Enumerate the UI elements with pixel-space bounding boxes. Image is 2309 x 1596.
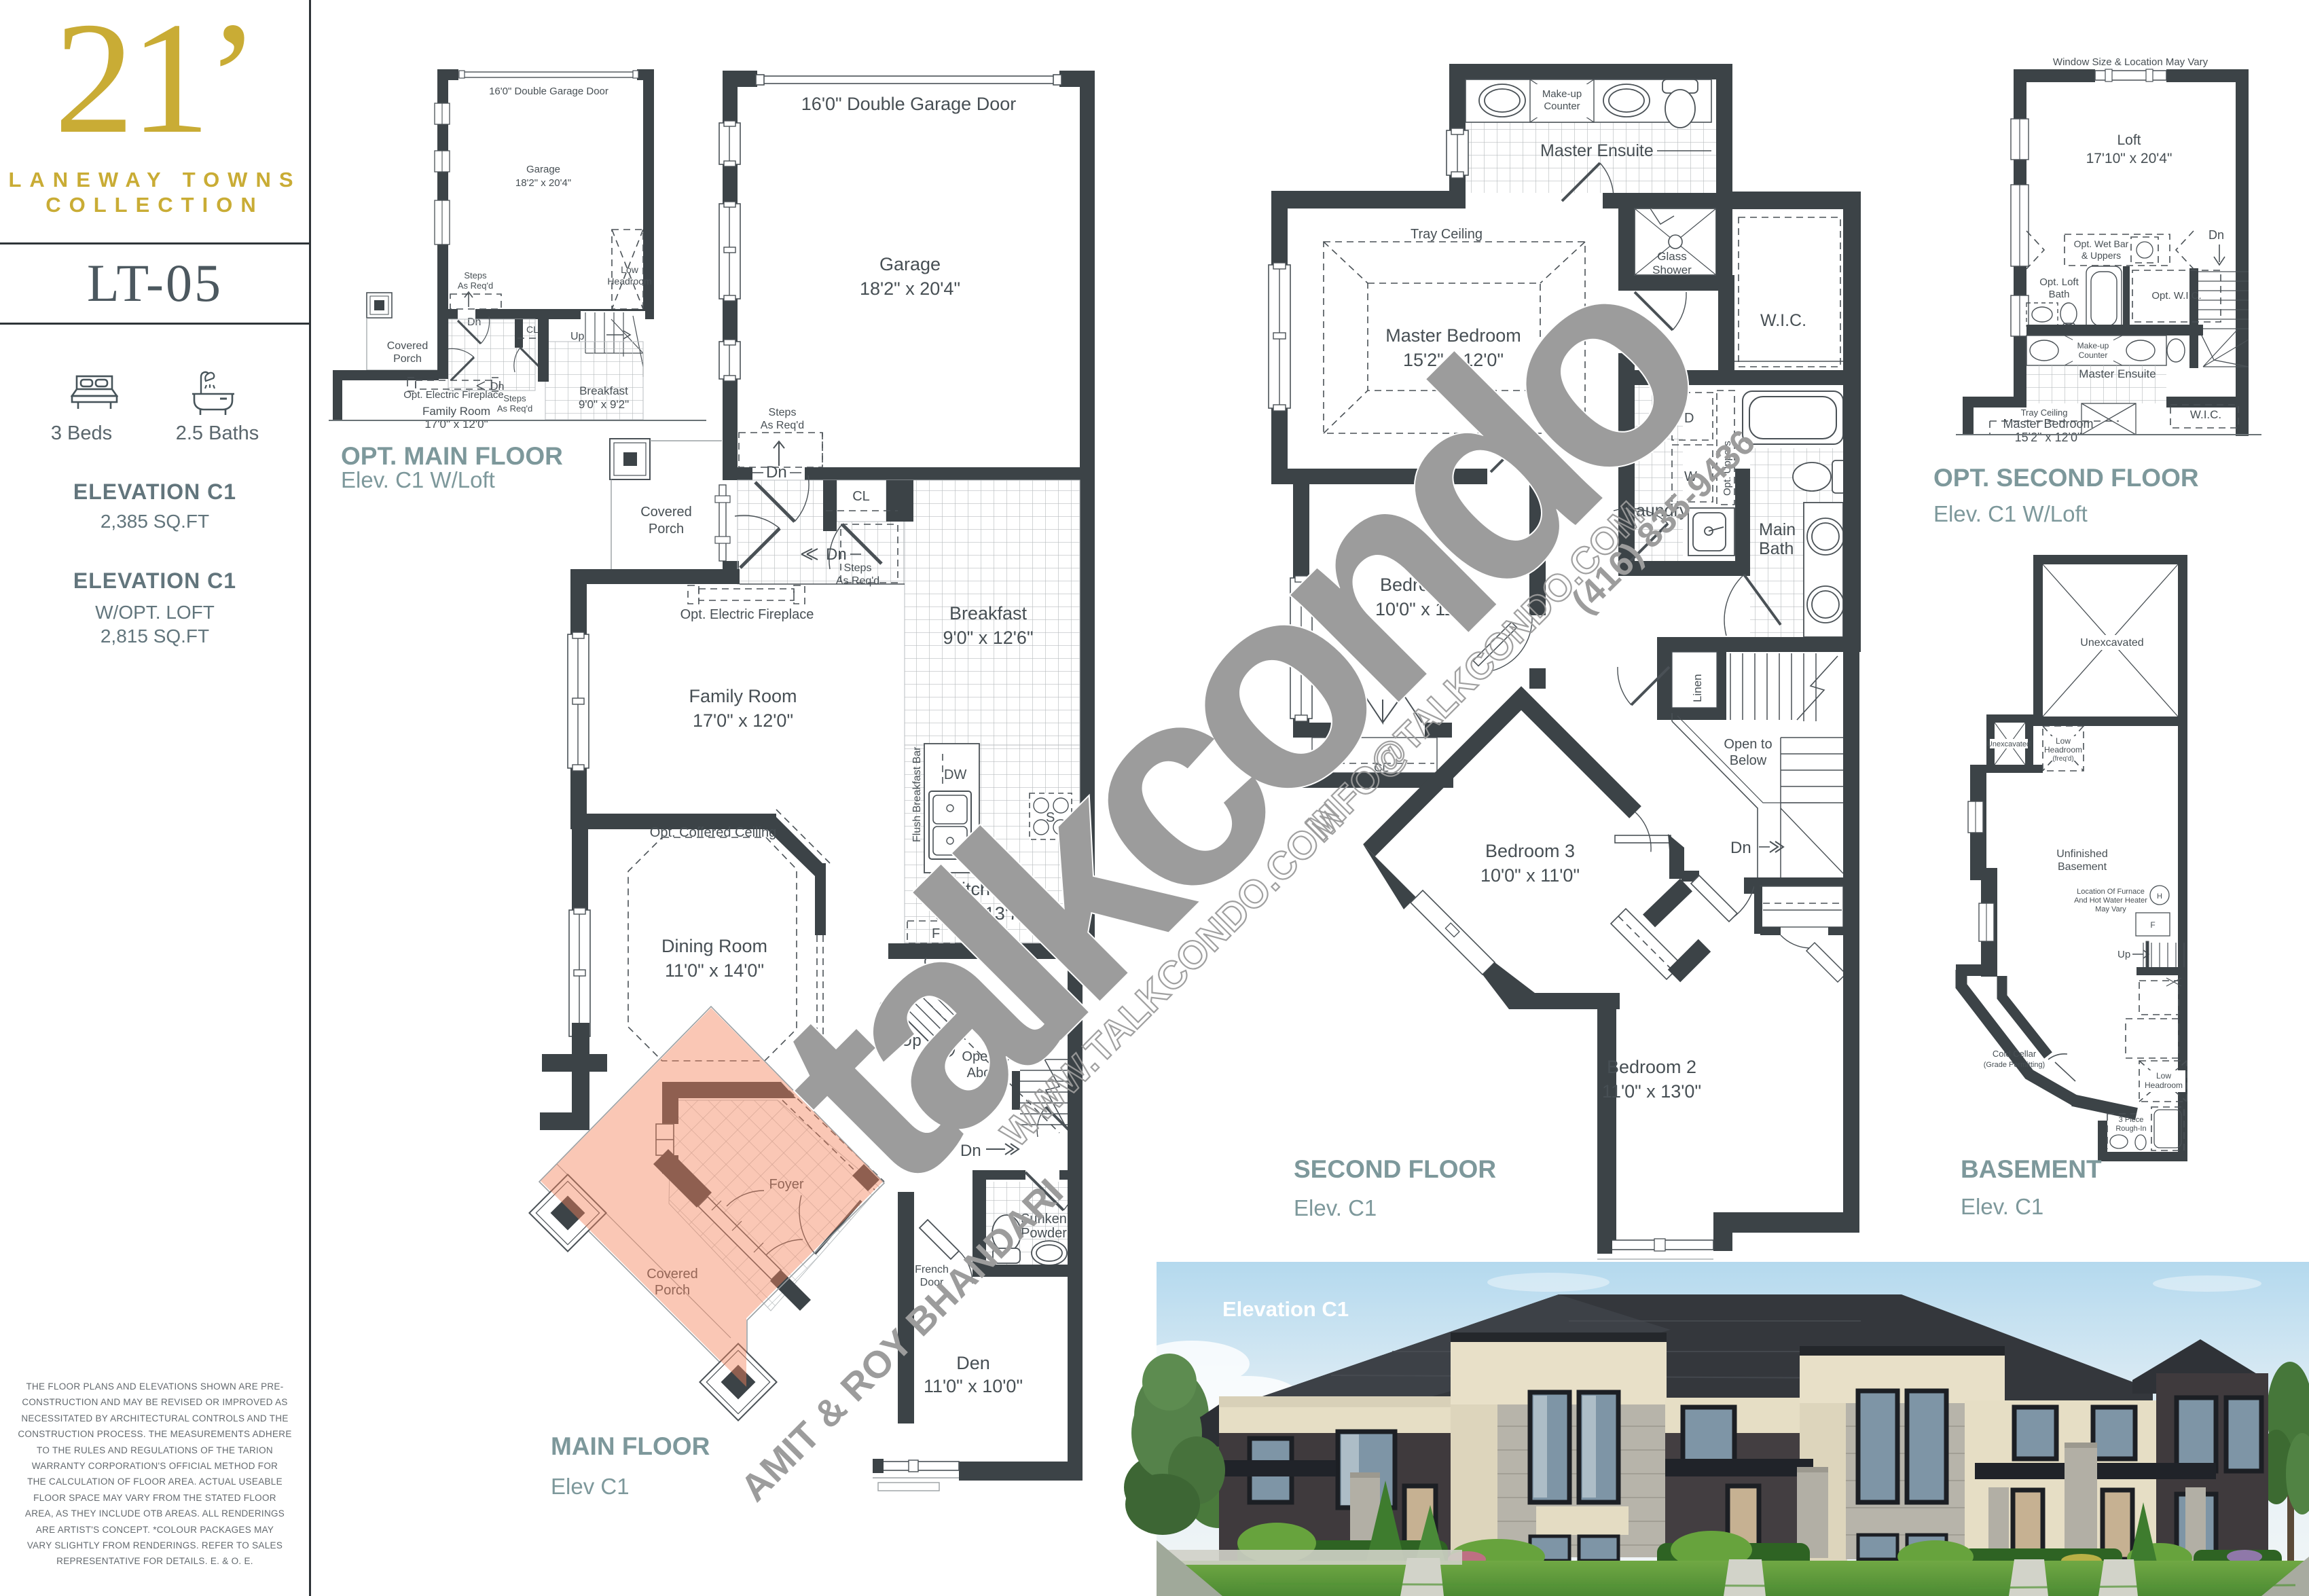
svg-text:CL: CL bbox=[526, 324, 539, 335]
svg-text:Covered: Covered bbox=[387, 340, 428, 352]
svg-text:F: F bbox=[2150, 920, 2155, 930]
svg-text:Dn: Dn bbox=[766, 463, 787, 482]
svg-text:As Req'd: As Req'd bbox=[458, 280, 493, 291]
svg-text:11'0" x 14'0": 11'0" x 14'0" bbox=[665, 960, 764, 981]
svg-text:Make-up: Make-up bbox=[2077, 341, 2109, 350]
svg-text:Master Bedroom: Master Bedroom bbox=[2003, 417, 2093, 431]
svg-text:Porch: Porch bbox=[393, 353, 422, 365]
svg-text:Window Size & Location May Var: Window Size & Location May Vary bbox=[2053, 56, 2208, 68]
svg-text:Tray Ceiling: Tray Ceiling bbox=[1411, 227, 1483, 242]
svg-text:Up: Up bbox=[570, 331, 585, 342]
svg-text:Unexcavated: Unexcavated bbox=[1987, 740, 2031, 748]
svg-text:Counter: Counter bbox=[1544, 101, 1580, 112]
svg-text:Make-up: Make-up bbox=[1542, 88, 1582, 100]
svg-text:Den: Den bbox=[956, 1353, 990, 1373]
svg-text:Elevation C1: Elevation C1 bbox=[1222, 1297, 1349, 1321]
svg-text:15'2" x 12'0": 15'2" x 12'0" bbox=[2015, 431, 2082, 444]
svg-text:CL: CL bbox=[852, 489, 870, 504]
svg-text:W.I.C.: W.I.C. bbox=[1760, 311, 1806, 330]
svg-text:Bath: Bath bbox=[2049, 289, 2070, 300]
svg-text:Low: Low bbox=[621, 264, 639, 275]
svg-text:(Grade Permitting): (Grade Permitting) bbox=[1984, 1061, 2045, 1069]
svg-text:Opt. Electric Fireplace: Opt. Electric Fireplace bbox=[403, 389, 504, 401]
svg-text:& Uppers: & Uppers bbox=[2081, 250, 2121, 261]
svg-text:Opt. Loft: Opt. Loft bbox=[2039, 276, 2079, 288]
svg-text:18'2" x 20'4": 18'2" x 20'4" bbox=[860, 278, 960, 299]
svg-text:Steps: Steps bbox=[464, 270, 487, 280]
svg-text:Headroom: Headroom bbox=[607, 276, 651, 287]
svg-text:Open to: Open to bbox=[1724, 737, 1772, 752]
svg-text:Breakfast: Breakfast bbox=[949, 603, 1028, 623]
svg-text:Below: Below bbox=[1730, 753, 1767, 768]
svg-text:OPT. SECOND FLOOR: OPT. SECOND FLOOR bbox=[1933, 464, 2199, 492]
svg-text:Cold Cellar: Cold Cellar bbox=[1993, 1049, 2037, 1059]
svg-text:MAIN FLOOR: MAIN FLOOR bbox=[551, 1432, 710, 1460]
svg-text:Dn: Dn bbox=[826, 545, 847, 564]
svg-text:Family Room: Family Room bbox=[422, 405, 490, 418]
svg-text:16'0" Double Garage Door: 16'0" Double Garage Door bbox=[801, 94, 1016, 114]
svg-text:17'0" x 12'0": 17'0" x 12'0" bbox=[424, 418, 488, 431]
svg-text:Breakfast: Breakfast bbox=[579, 384, 628, 397]
svg-text:18'2" x 20'4": 18'2" x 20'4" bbox=[515, 177, 571, 189]
svg-text:Bath: Bath bbox=[1759, 539, 1794, 558]
svg-text:H: H bbox=[2157, 892, 2162, 901]
svg-text:11'0" x 13'0": 11'0" x 13'0" bbox=[1602, 1081, 1701, 1102]
svg-text:Garage: Garage bbox=[879, 254, 941, 274]
svg-text:Master Ensuite: Master Ensuite bbox=[2079, 367, 2156, 380]
svg-text:Covered: Covered bbox=[640, 505, 692, 520]
svg-text:Elev. C1: Elev. C1 bbox=[1294, 1195, 1377, 1220]
svg-text:Elev. C1 W/Loft: Elev. C1 W/Loft bbox=[1933, 501, 2088, 526]
svg-text:Up: Up bbox=[2117, 949, 2130, 960]
svg-text:9'0" x 9'2": 9'0" x 9'2" bbox=[579, 398, 629, 411]
svg-text:Opt. Electric Fireplace: Opt. Electric Fireplace bbox=[680, 607, 814, 622]
svg-text:3 Piece: 3 Piece bbox=[2119, 1116, 2144, 1124]
svg-text:Counter: Counter bbox=[2079, 350, 2108, 360]
svg-text:Dn: Dn bbox=[2208, 228, 2224, 242]
svg-text:Shower: Shower bbox=[1652, 264, 1692, 276]
svg-text:(freq'd): (freq'd) bbox=[2052, 755, 2073, 763]
svg-text:Unexcavated: Unexcavated bbox=[2080, 637, 2143, 649]
svg-text:Unfinished: Unfinished bbox=[2056, 848, 2108, 860]
svg-text:Elev. C1 W/Loft: Elev. C1 W/Loft bbox=[341, 467, 495, 492]
svg-text:BASEMENT: BASEMENT bbox=[1961, 1155, 2102, 1183]
svg-text:Steps: Steps bbox=[844, 562, 872, 574]
svg-text:May Vary: May Vary bbox=[2095, 905, 2126, 913]
svg-text:SECOND FLOOR: SECOND FLOOR bbox=[1294, 1155, 1496, 1183]
svg-text:Tray Ceiling: Tray Ceiling bbox=[2021, 407, 2068, 418]
svg-text:10'0" x 11'0": 10'0" x 11'0" bbox=[1480, 865, 1580, 886]
svg-text:Headroom: Headroom bbox=[2044, 745, 2082, 755]
svg-text:Bedroom 2: Bedroom 2 bbox=[1607, 1057, 1696, 1077]
svg-text:Steps: Steps bbox=[503, 393, 526, 403]
svg-text:Porch: Porch bbox=[649, 522, 684, 537]
svg-text:Rough-In: Rough-In bbox=[2115, 1125, 2146, 1133]
svg-text:Master Ensuite: Master Ensuite bbox=[1540, 141, 1654, 160]
svg-text:As Req'd: As Req'd bbox=[497, 403, 532, 414]
svg-text:Elev C1: Elev C1 bbox=[551, 1474, 630, 1499]
svg-text:And Hot Water Heater: And Hot Water Heater bbox=[2074, 896, 2147, 905]
svg-text:As Req'd: As Req'd bbox=[761, 420, 804, 431]
svg-text:As Req'd: As Req'd bbox=[836, 575, 879, 587]
svg-text:W.I.C.: W.I.C. bbox=[2190, 408, 2221, 421]
svg-text:Linen: Linen bbox=[1691, 674, 1704, 702]
svg-text:Family Room: Family Room bbox=[689, 686, 797, 706]
svg-text:17'10" x 20'4": 17'10" x 20'4" bbox=[2086, 151, 2172, 166]
svg-text:Opt. W.I.C.: Opt. W.I.C. bbox=[2151, 290, 2201, 302]
svg-text:Loft: Loft bbox=[2117, 132, 2141, 148]
svg-text:Dining Room: Dining Room bbox=[661, 936, 767, 956]
svg-text:Bedroom 3: Bedroom 3 bbox=[1485, 841, 1575, 861]
svg-text:OPT. MAIN FLOOR: OPT. MAIN FLOOR bbox=[341, 442, 563, 470]
svg-text:11'0" x 10'0": 11'0" x 10'0" bbox=[924, 1376, 1023, 1396]
svg-text:Garage: Garage bbox=[526, 164, 560, 175]
svg-text:Opt. Wet Bar: Opt. Wet Bar bbox=[2074, 238, 2129, 249]
svg-text:Basement: Basement bbox=[2058, 861, 2107, 873]
svg-text:Elev. C1: Elev. C1 bbox=[1961, 1194, 2043, 1219]
svg-text:Dn: Dn bbox=[1730, 839, 1751, 857]
svg-text:Location Of Furnace: Location Of Furnace bbox=[2077, 888, 2145, 896]
svg-text:Main: Main bbox=[1759, 520, 1796, 539]
svg-text:Steps: Steps bbox=[769, 407, 797, 418]
svg-text:Low: Low bbox=[2156, 1071, 2171, 1081]
svg-text:9'0" x 12'6": 9'0" x 12'6" bbox=[943, 628, 1033, 648]
svg-text:17'0" x 12'0": 17'0" x 12'0" bbox=[693, 710, 793, 731]
svg-text:Low: Low bbox=[2056, 736, 2071, 746]
svg-text:16'0" Double Garage Door: 16'0" Double Garage Door bbox=[489, 86, 608, 97]
svg-text:Glass: Glass bbox=[1657, 250, 1686, 263]
svg-text:Headroom: Headroom bbox=[2145, 1081, 2183, 1090]
